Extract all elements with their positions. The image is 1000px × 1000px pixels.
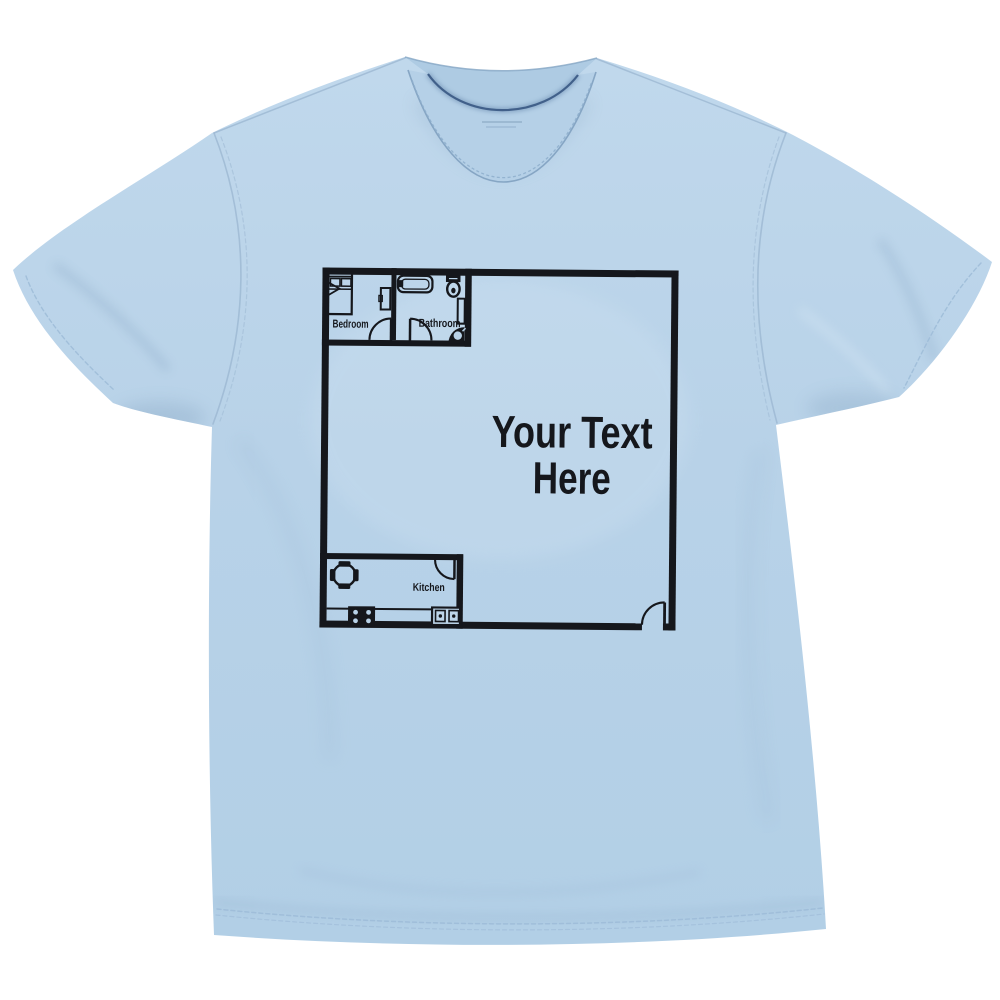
kitchen-label: Kitchen: [413, 582, 445, 594]
chair-icon: [338, 583, 350, 589]
kitchen-top-wall: [320, 556, 463, 557]
stove-burner: [353, 618, 358, 623]
custom-text-line1: Your Text: [491, 406, 652, 458]
outer-wall-left: [323, 267, 326, 627]
outer-wall-right: [672, 271, 675, 631]
corner-sink-basin: [454, 331, 462, 339]
outer-wall-top: [323, 271, 679, 274]
product-photo: Bedroom Bathroom Kitchen Your Text Here: [0, 0, 1000, 1000]
tshirt: [13, 57, 992, 945]
chair-icon: [353, 569, 359, 581]
sink-drain: [452, 614, 455, 617]
tshirt-photo-svg: Bedroom Bathroom Kitchen Your Text Here: [0, 0, 1000, 1000]
bathroom-label: Bathroom: [419, 318, 461, 330]
sink-drain: [439, 614, 442, 617]
bedroom-label: Bedroom: [333, 319, 369, 331]
custom-text-line2: Here: [533, 452, 611, 504]
bedroom-bath-right-wall: [468, 269, 469, 347]
stove-icon: [348, 606, 375, 627]
chair-icon: [330, 569, 336, 581]
stove-burner: [366, 618, 371, 623]
bathtub-faucet: [398, 280, 403, 287]
stove-burner: [353, 610, 358, 615]
stove-burner: [366, 610, 371, 615]
counter-icon: [327, 609, 433, 610]
chair-icon: [338, 561, 350, 567]
bedroom-bath-divider-wall: [393, 268, 394, 340]
